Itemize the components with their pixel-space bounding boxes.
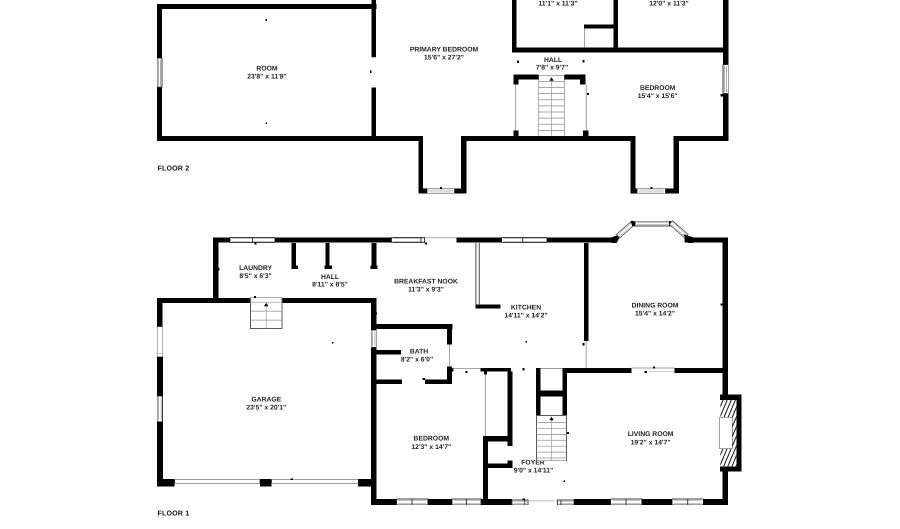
svg-text:8'5" x 6'3": 8'5" x 6'3" xyxy=(239,273,271,280)
svg-text:HALL: HALL xyxy=(321,274,339,281)
svg-text:FLOOR 1: FLOOR 1 xyxy=(158,509,190,517)
svg-text:23'5" x 20'1": 23'5" x 20'1" xyxy=(246,404,286,411)
svg-text:LAUNDRY: LAUNDRY xyxy=(239,265,272,272)
svg-text:GARAGE: GARAGE xyxy=(251,396,281,403)
svg-text:8'11" x 8'5": 8'11" x 8'5" xyxy=(312,282,348,289)
svg-text:PRIMARY BEDROOM: PRIMARY BEDROOM xyxy=(410,47,479,54)
svg-text:15'4" x 14'2": 15'4" x 14'2" xyxy=(635,311,675,318)
svg-text:15'4" x 15'6": 15'4" x 15'6" xyxy=(638,93,678,100)
svg-text:19'2" x 14'7": 19'2" x 14'7" xyxy=(631,440,671,447)
svg-text:HALL: HALL xyxy=(544,57,562,64)
svg-text:FLOOR 2: FLOOR 2 xyxy=(158,164,190,172)
svg-text:BATH: BATH xyxy=(410,348,428,355)
svg-text:12'0" x 11'3": 12'0" x 11'3" xyxy=(649,0,689,7)
svg-text:LIVING ROOM: LIVING ROOM xyxy=(628,431,674,438)
svg-text:15'6" x 27'2": 15'6" x 27'2" xyxy=(424,55,464,62)
svg-text:BEDROOM: BEDROOM xyxy=(640,85,676,92)
svg-text:KITCHEN: KITCHEN xyxy=(511,305,541,312)
svg-text:DINING ROOM: DINING ROOM xyxy=(632,303,679,310)
svg-text:14'11" x 14'2": 14'11" x 14'2" xyxy=(504,313,547,320)
svg-text:BREAKFAST NOOK: BREAKFAST NOOK xyxy=(394,279,458,286)
svg-text:7'8" x 9'7": 7'8" x 9'7" xyxy=(536,64,568,71)
svg-text:8'2" x 6'0": 8'2" x 6'0" xyxy=(401,356,433,363)
svg-text:12'3" x 14'7": 12'3" x 14'7" xyxy=(411,444,451,451)
svg-text:9'0" x 14'11": 9'0" x 14'11" xyxy=(514,467,554,474)
svg-text:BEDROOM: BEDROOM xyxy=(414,436,450,443)
svg-text:11'3" x 9'3": 11'3" x 9'3" xyxy=(408,287,444,294)
svg-text:11'1" x 11'3": 11'1" x 11'3" xyxy=(538,0,577,7)
svg-text:23'8" x 11'8": 23'8" x 11'8" xyxy=(247,74,287,81)
svg-text:ROOM: ROOM xyxy=(256,66,277,73)
